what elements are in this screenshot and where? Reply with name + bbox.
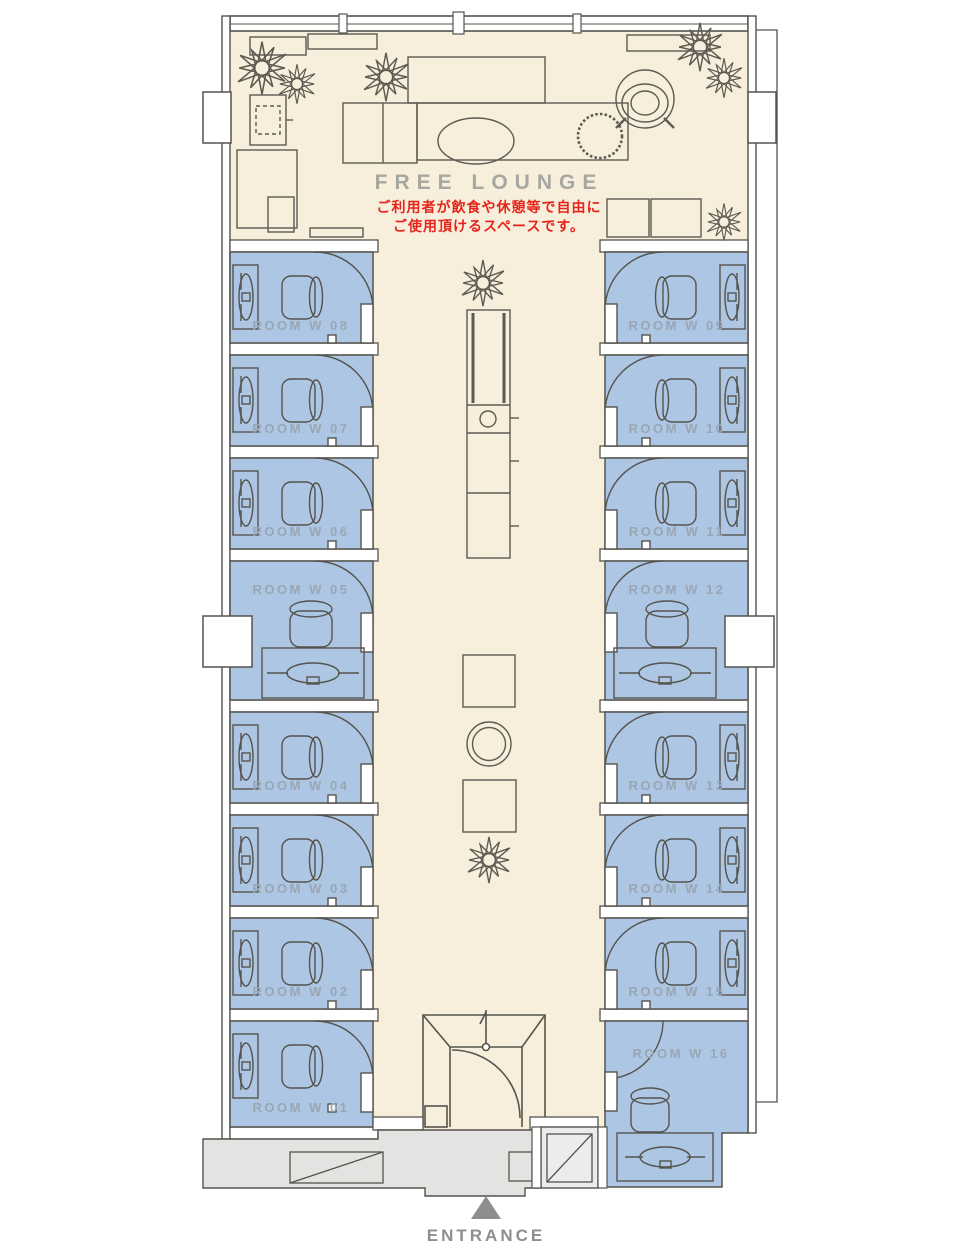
room-w01-label: ROOM W 01 bbox=[253, 1100, 350, 1115]
room-w10-label: ROOM W 10 bbox=[629, 421, 726, 436]
pillar bbox=[203, 616, 252, 667]
room-w13-label: ROOM W 13 bbox=[629, 778, 726, 793]
room-w11-label: ROOM W 11 bbox=[629, 524, 725, 539]
corridor-floor bbox=[373, 240, 608, 1130]
floor-plan-page: ROOM W 08 ROOM W 07 ROOM W 06 ROOM W 05 … bbox=[0, 0, 977, 1260]
room-w15-label: ROOM W 15 bbox=[629, 984, 726, 999]
room-w14-label: ROOM W 14 bbox=[629, 881, 726, 896]
room-w08-label: ROOM W 08 bbox=[253, 318, 350, 333]
room-w07-label: ROOM W 07 bbox=[253, 421, 350, 436]
pillar bbox=[725, 616, 774, 667]
rooms-right: ROOM W 09 ROOM W 10 ROOM W 11 ROOM W 12 … bbox=[605, 252, 748, 1187]
walkway bbox=[203, 1130, 540, 1196]
balcony-edge bbox=[756, 30, 777, 1102]
room-w05-label: ROOM W 05 bbox=[253, 582, 350, 597]
room-w16-label: ROOM W 16 bbox=[633, 1046, 730, 1061]
pillar bbox=[203, 92, 231, 143]
window-mullion bbox=[573, 14, 581, 33]
wall-stub bbox=[532, 1127, 541, 1188]
pillar bbox=[748, 92, 776, 143]
entrance-label: ENTRANCE bbox=[427, 1226, 545, 1245]
window-mullion bbox=[339, 14, 347, 33]
room-w04-label: ROOM W 04 bbox=[253, 778, 350, 793]
room-w03-label: ROOM W 03 bbox=[253, 881, 350, 896]
right-wall bbox=[748, 16, 756, 1133]
room-w12-label: ROOM W 12 bbox=[629, 582, 726, 597]
room-w09-label: ROOM W 09 bbox=[629, 318, 726, 333]
step-box bbox=[425, 1106, 447, 1127]
entrance-arrow-icon bbox=[471, 1196, 501, 1219]
free-lounge-title: FREE LOUNGE bbox=[375, 171, 604, 194]
floor-plan: ROOM W 08 ROOM W 07 ROOM W 06 ROOM W 05 … bbox=[0, 0, 977, 1260]
left-wall bbox=[222, 16, 230, 1139]
room-w06-label: ROOM W 06 bbox=[253, 524, 350, 539]
rooms-left: ROOM W 08 ROOM W 07 ROOM W 06 ROOM W 05 … bbox=[230, 252, 373, 1127]
wall-stub bbox=[373, 1117, 423, 1130]
lounge-note-line2: ご使用頂けるスペースです。 bbox=[393, 218, 585, 234]
lounge-note-line1: ご利用者が飲食や休憩等で自由に bbox=[377, 199, 602, 215]
room-w02-label: ROOM W 02 bbox=[253, 984, 350, 999]
window-mullion bbox=[453, 12, 464, 34]
wall-stub bbox=[598, 1127, 607, 1188]
door-leaf bbox=[605, 1072, 617, 1111]
